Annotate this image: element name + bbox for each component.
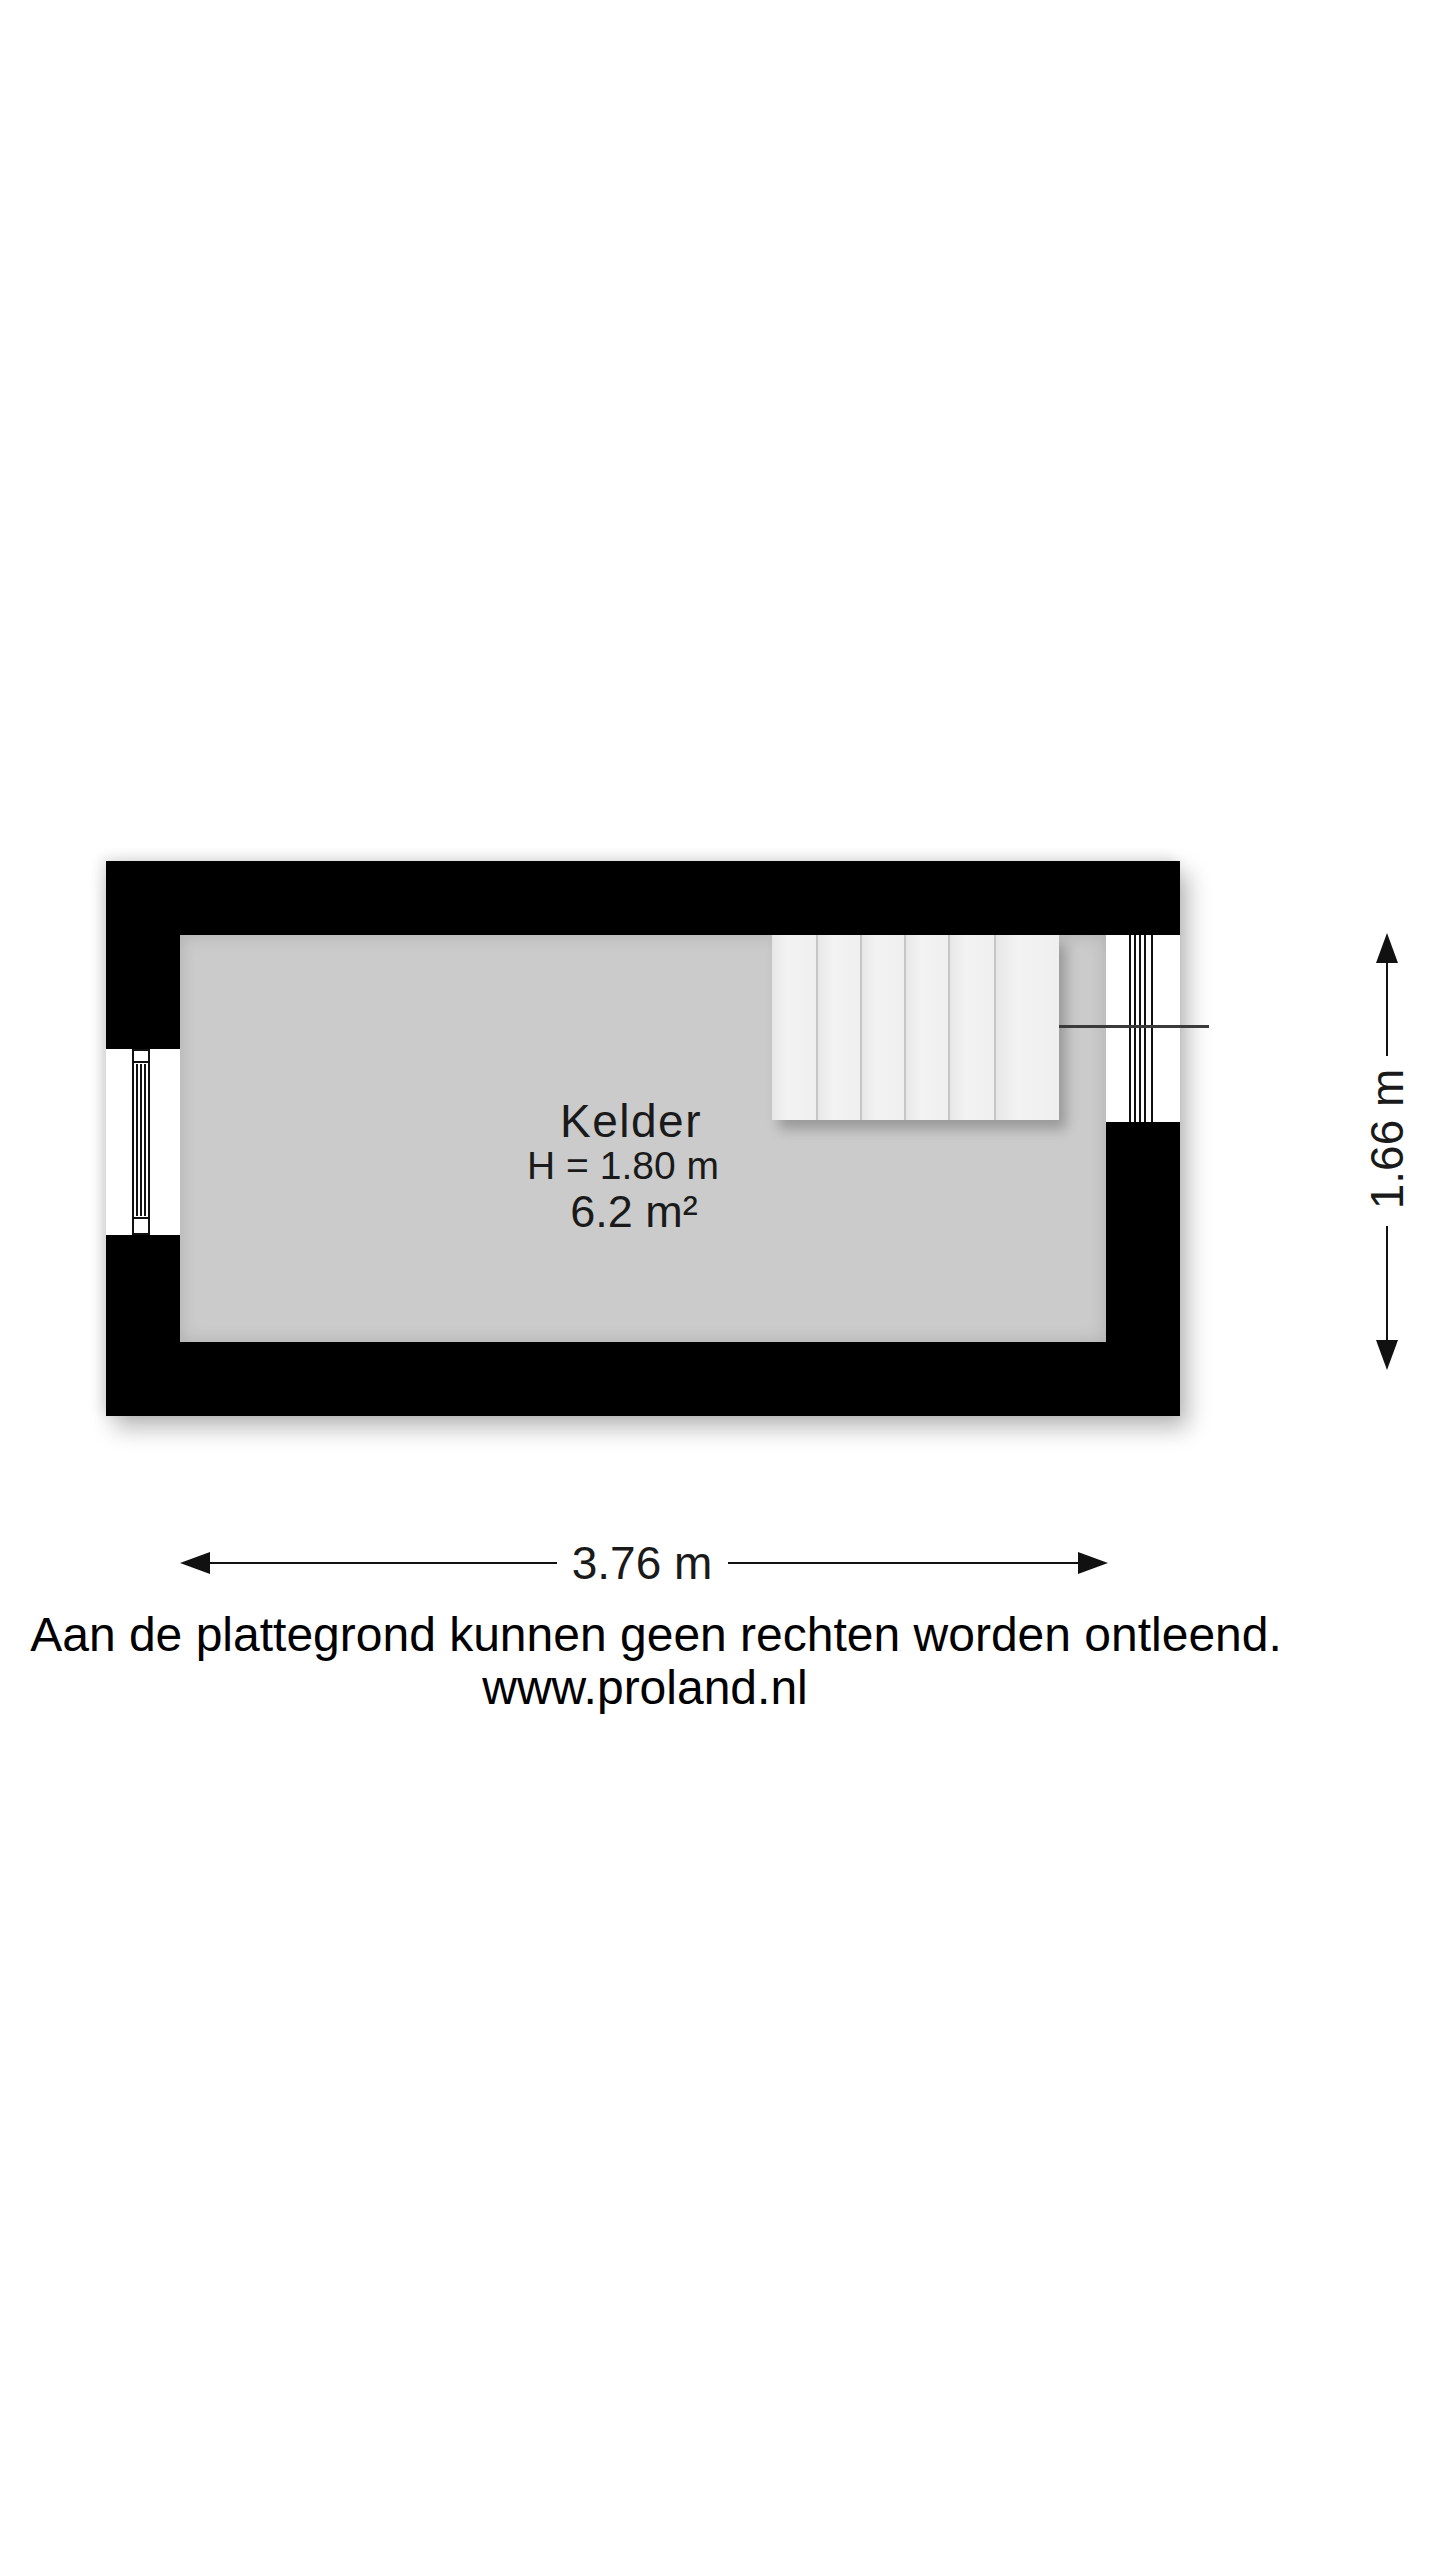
stair-tread	[772, 935, 818, 1120]
window-glazing-line	[1129, 935, 1131, 1122]
window-glazing-line	[136, 1064, 138, 1216]
room-area-label: 6.2 m²	[570, 1186, 698, 1238]
right-window	[1106, 935, 1180, 1122]
page-canvas: Kelder H = 1.80 m 6.2 m² 3.76 m 1.66 m A…	[0, 0, 1440, 2560]
stair-tread	[862, 935, 906, 1120]
dimension-line	[205, 1562, 557, 1564]
width-dimension-label: 3.76 m	[572, 1536, 713, 1590]
room-height-label: H = 1.80 m	[527, 1144, 719, 1188]
dimension-line	[1386, 958, 1388, 1056]
stair-tread	[906, 935, 950, 1120]
window-glazing-line	[134, 1061, 148, 1063]
window-glazing-line	[1139, 935, 1141, 1122]
dimension-line	[728, 1562, 1080, 1564]
window-glazing-line	[1134, 935, 1136, 1122]
window-glazing-line	[144, 1064, 146, 1216]
window-glazing-line	[140, 1064, 142, 1216]
room-name-label: Kelder	[560, 1094, 702, 1148]
dimension-arrow-down-icon	[1376, 1340, 1398, 1370]
left-window	[106, 1049, 180, 1235]
website-text: www.proland.nl	[482, 1660, 808, 1715]
window-frame	[132, 1049, 150, 1235]
dimension-arrow-right-icon	[1078, 1552, 1108, 1574]
window-glazing-line	[1144, 935, 1146, 1122]
dimension-line	[1386, 1226, 1388, 1344]
stairs	[772, 935, 1059, 1120]
stair-tread	[996, 935, 1059, 1120]
height-dimension-label: 1.66 m	[1360, 1069, 1414, 1210]
window-glazing-line	[1151, 935, 1153, 1122]
disclaimer-text: Aan de plattegrond kunnen geen rechten w…	[30, 1607, 1282, 1662]
stair-tread	[950, 935, 996, 1120]
window-glazing-line	[134, 1217, 148, 1219]
stair-tread	[818, 935, 862, 1120]
stair-section-line	[1059, 1025, 1209, 1028]
